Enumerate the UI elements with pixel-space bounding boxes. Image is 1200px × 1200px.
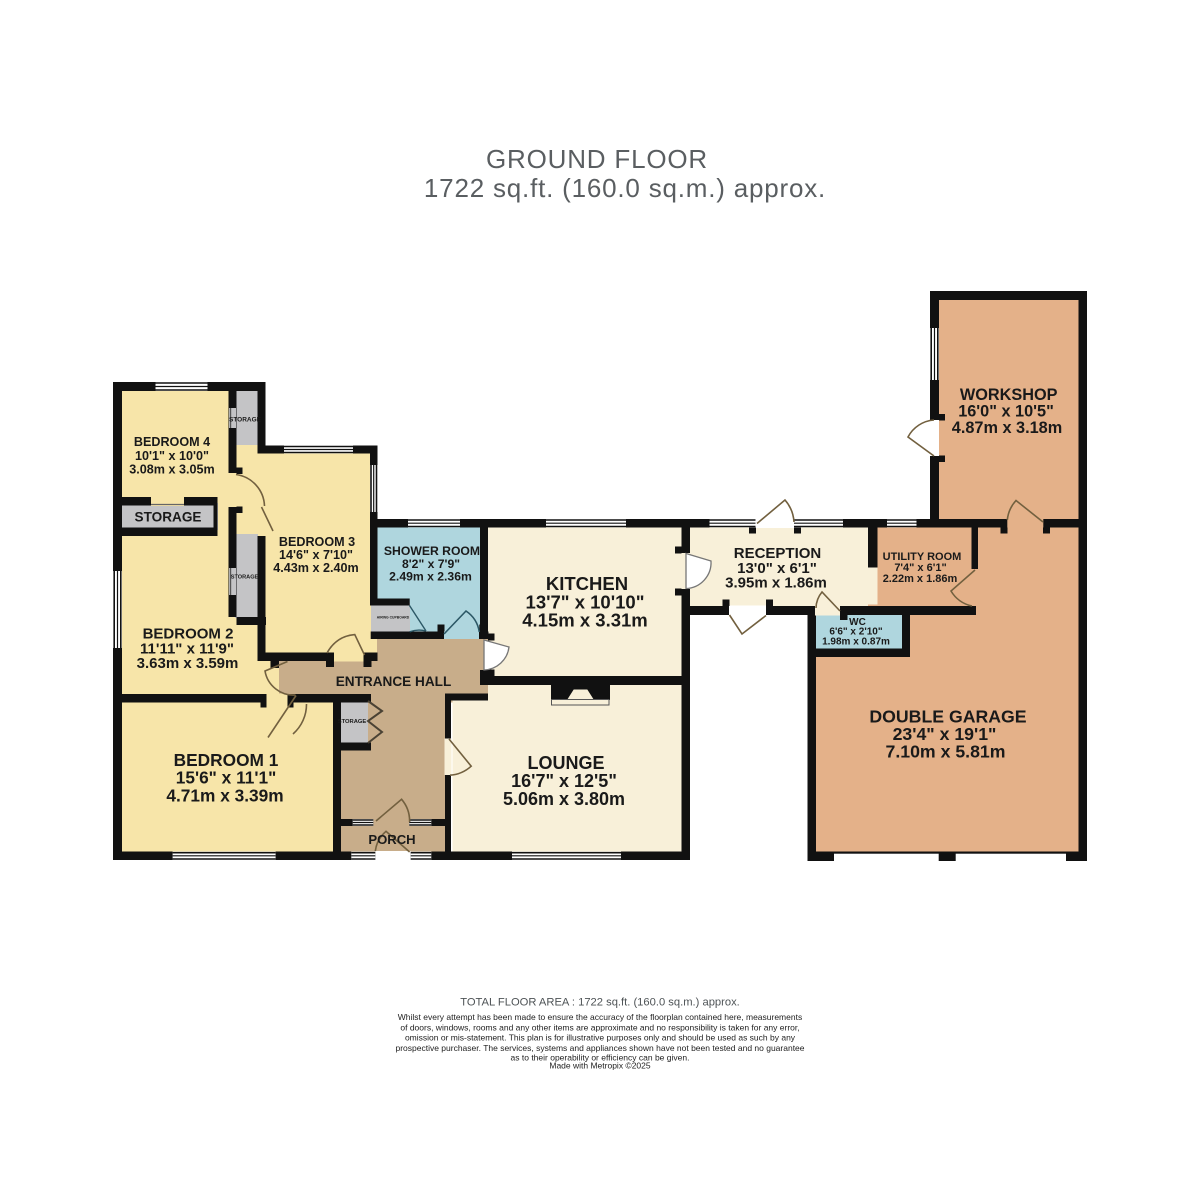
svg-text:2.22m x 1.86m: 2.22m x 1.86m xyxy=(883,573,958,585)
svg-text:16'0" x 10'5": 16'0" x 10'5" xyxy=(958,403,1054,421)
svg-text:STORAGE: STORAGE xyxy=(229,417,262,424)
svg-text:ENTRANCE HALL: ENTRANCE HALL xyxy=(336,674,452,689)
svg-text:LOUNGE: LOUNGE xyxy=(527,753,604,773)
svg-text:7.10m x 5.81m: 7.10m x 5.81m xyxy=(886,742,1006,762)
svg-text:14'6" x 7'10": 14'6" x 7'10" xyxy=(279,548,353,562)
svg-text:16'7" x 12'5": 16'7" x 12'5" xyxy=(511,771,617,791)
svg-text:GROUND FLOOR: GROUND FLOOR xyxy=(486,144,708,174)
svg-text:STORAGE: STORAGE xyxy=(338,719,367,725)
svg-text:1.98m x 0.87m: 1.98m x 0.87m xyxy=(822,637,890,648)
svg-text:SHOWER ROOM: SHOWER ROOM xyxy=(384,544,480,558)
svg-text:3.63m x 3.59m: 3.63m x 3.59m xyxy=(137,655,239,672)
svg-text:Made with Metropix ©2025: Made with Metropix ©2025 xyxy=(549,1060,651,1070)
svg-text:BEDROOM 3: BEDROOM 3 xyxy=(279,535,355,549)
svg-text:10'1" x 10'0": 10'1" x 10'0" xyxy=(135,449,209,463)
svg-text:PORCH: PORCH xyxy=(368,832,415,847)
svg-text:omission or mis-statement. Thi: omission or mis-statement. This plan is … xyxy=(405,1033,796,1043)
svg-text:STORAGE: STORAGE xyxy=(231,574,259,580)
svg-text:WORKSHOP: WORKSHOP xyxy=(960,386,1058,404)
svg-text:3.95m x 1.86m: 3.95m x 1.86m xyxy=(725,575,827,592)
svg-text:1722 sq.ft. (160.0 sq.m.) appr: 1722 sq.ft. (160.0 sq.m.) approx. xyxy=(424,173,826,203)
svg-text:BEDROOM 4: BEDROOM 4 xyxy=(134,435,210,449)
svg-text:4.87m x 3.18m: 4.87m x 3.18m xyxy=(952,419,1062,437)
svg-text:TOTAL FLOOR AREA : 1722 sq.ft.: TOTAL FLOOR AREA : 1722 sq.ft. (160.0 sq… xyxy=(460,997,740,1009)
svg-text:STORAGE: STORAGE xyxy=(135,510,202,525)
svg-text:Whilst every attempt has been: Whilst every attempt has been made to en… xyxy=(398,1012,802,1022)
svg-text:2.49m x 2.36m: 2.49m x 2.36m xyxy=(389,570,472,584)
svg-text:3.08m x 3.05m: 3.08m x 3.05m xyxy=(129,463,214,477)
svg-text:4.43m x 2.40m: 4.43m x 2.40m xyxy=(273,561,358,575)
svg-text:5.06m x 3.80m: 5.06m x 3.80m xyxy=(503,789,625,809)
svg-text:AIRING CUPBOARD: AIRING CUPBOARD xyxy=(377,616,410,620)
svg-text:4.71m x 3.39m: 4.71m x 3.39m xyxy=(166,785,283,805)
svg-text:4.15m x 3.31m: 4.15m x 3.31m xyxy=(522,610,647,631)
svg-text:of doors, windows, rooms and a: of doors, windows, rooms and any other i… xyxy=(400,1022,799,1032)
